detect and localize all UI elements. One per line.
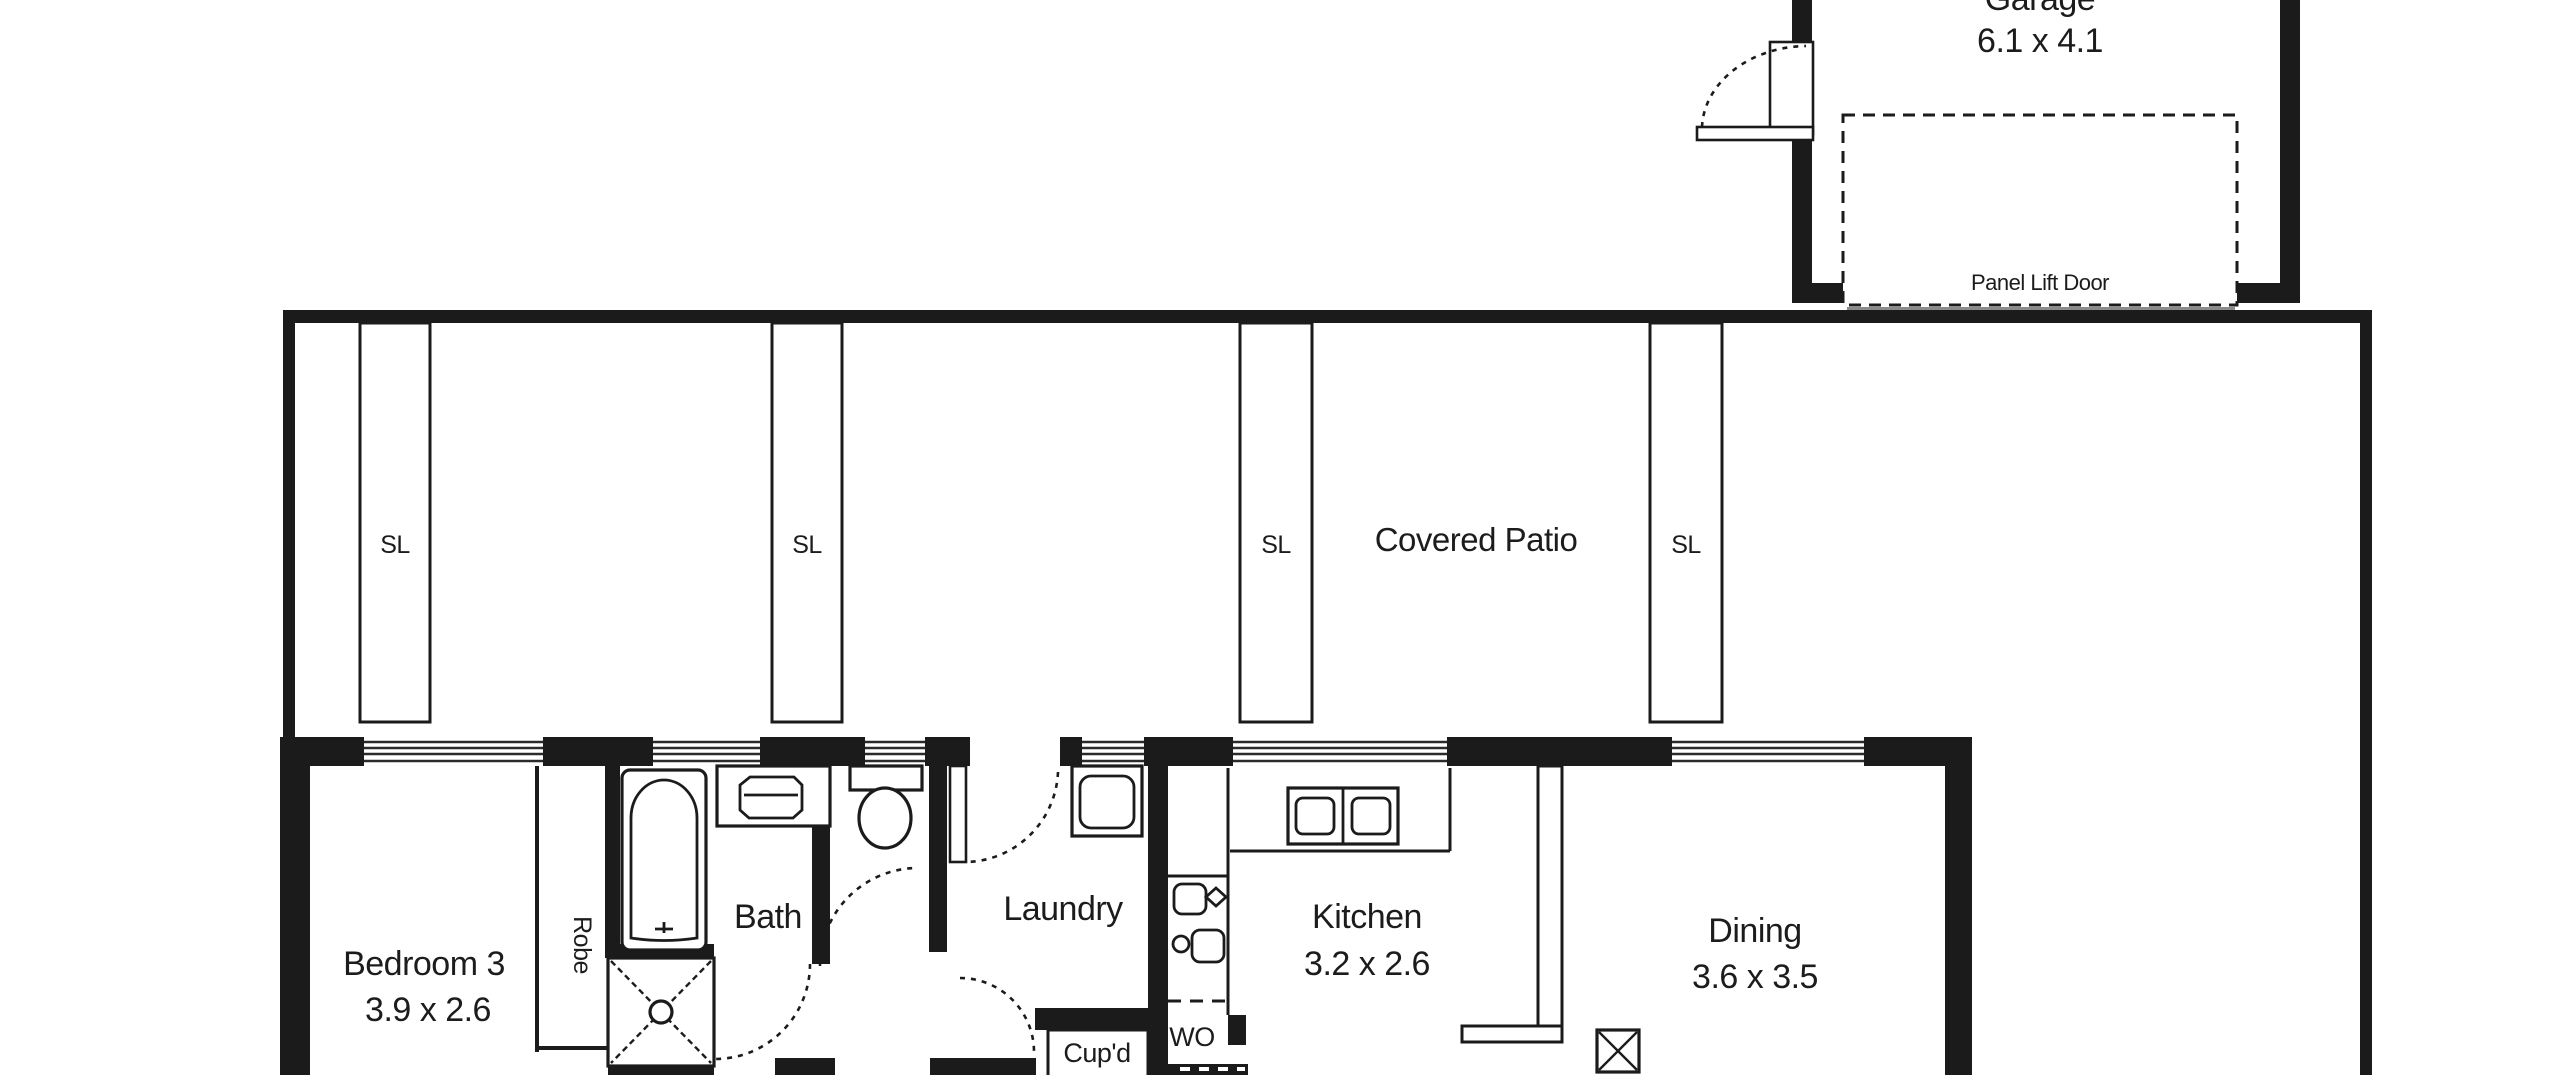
window-wc <box>865 742 925 761</box>
bedroom3: Bedroom 3 3.9 x 2.6 <box>343 945 505 1029</box>
wall-oven-label: WO <box>1169 1022 1215 1052</box>
window-dining <box>1672 742 1864 761</box>
patio-top-wall <box>283 310 2372 323</box>
garage-right-wall <box>2280 0 2300 303</box>
patio-post-3-label: SL <box>1261 531 1291 559</box>
toilet-bowl <box>859 788 911 848</box>
hall-door-swing-arc <box>960 978 1034 1052</box>
laundry-kitchen-wall <box>1148 766 1168 1075</box>
dining: Dining 3.6 x 3.5 <box>1597 912 1818 1072</box>
front-wall-pier <box>1144 737 1233 766</box>
garage-side-door-leaf <box>1697 127 1813 140</box>
window-laundry <box>1082 742 1144 761</box>
robe-label: Robe <box>568 916 596 974</box>
floor-unit-box <box>1597 1030 1639 1072</box>
cooktop-burner <box>1206 888 1226 906</box>
dining-label: Dining <box>1708 912 1801 950</box>
dining-right-exterior-wall <box>1945 766 1972 1075</box>
patio-left-wall <box>283 310 295 740</box>
garage-left-wall-lower <box>1792 133 1812 303</box>
shower-drain <box>650 1001 672 1023</box>
patio-post-4: SL <box>1650 323 1722 722</box>
laundry-door-leaf <box>950 766 966 862</box>
laundry-door-swing-arc <box>966 772 1058 862</box>
robe-bottom-line <box>539 1046 607 1050</box>
cupboard-top-wall <box>1035 1008 1148 1030</box>
cupboard-label: Cup'd <box>1063 1038 1130 1068</box>
bathtub <box>622 770 706 950</box>
kitchen: WO Kitchen 3.2 x 2.6 <box>1168 766 1562 1052</box>
bedroom3-label: Bedroom 3 <box>343 945 505 983</box>
garage-dims: 6.1 x 4.1 <box>1977 22 2103 60</box>
front-wall-pier <box>1864 737 1972 766</box>
patio-post-2-label: SL <box>792 531 822 559</box>
patio-post-1-label: SL <box>380 531 410 559</box>
kitchen-partition-return <box>1462 1026 1562 1042</box>
window-bath <box>653 742 760 761</box>
garage-label: Garage <box>1985 0 2095 18</box>
kitchen-sink <box>1288 788 1398 844</box>
laundry-label: Laundry <box>1003 890 1123 928</box>
bedroom-robe-partition <box>535 766 539 1052</box>
patio-post-2-outline <box>772 323 842 722</box>
cupboard: Cup'd <box>1048 1030 1148 1075</box>
patio-post-3-outline <box>1240 323 1312 722</box>
garage-structure: Garage 6.1 x 4.1 Panel Lift Door <box>1697 0 2300 309</box>
garage-left-wall-upper <box>1792 0 1812 45</box>
toilet-cistern <box>850 766 922 790</box>
oven-bottom-wall <box>1148 1064 1248 1075</box>
garage-side-door <box>1697 42 1813 140</box>
front-wall-pier <box>1447 737 1672 766</box>
kitchen-label: Kitchen <box>1312 898 1422 936</box>
wc-door-swing-arc <box>820 868 918 966</box>
vanity <box>717 766 830 826</box>
laundry-external-door <box>950 766 1058 862</box>
cooktop <box>1173 884 1226 962</box>
front-wall-pier <box>543 737 653 766</box>
garage-side-door-panel <box>1770 42 1813 134</box>
floor-plan-canvas: Garage 6.1 x 4.1 Panel Lift Door SL SL S… <box>0 0 2560 1075</box>
bedroom3-dims: 3.9 x 2.6 <box>365 991 491 1029</box>
patio-post-2: SL <box>772 323 842 722</box>
house-front-wall <box>280 737 1972 766</box>
patio-post-3: SL <box>1240 323 1312 722</box>
window-kitchen <box>1233 742 1447 761</box>
patio-post-1: SL <box>360 323 430 722</box>
patio-right-wall <box>2360 310 2372 1075</box>
garage-bottom-wall-left-stub <box>1792 283 1847 303</box>
cooktop-burner <box>1192 930 1224 962</box>
front-wall-pier <box>1060 737 1082 766</box>
shower <box>608 958 714 1066</box>
front-wall-pier <box>925 737 970 766</box>
front-wall-pier <box>760 737 865 766</box>
kitchen-dining-partition <box>1538 766 1562 1034</box>
house-left-exterior-wall <box>280 737 310 1075</box>
panel-lift-door-label: Panel Lift Door <box>1971 270 2109 295</box>
cooktop-burner <box>1173 936 1189 952</box>
robe-bath-wall <box>605 766 620 958</box>
dining-dims: 3.6 x 3.5 <box>1692 958 1818 996</box>
floor-plan-drawing: Garage 6.1 x 4.1 Panel Lift Door SL SL S… <box>0 0 2560 1075</box>
laundry: Laundry Cup'd <box>950 766 1148 1075</box>
kitchen-wall-stub <box>1228 1015 1246 1045</box>
bath-door-swing-arc <box>715 964 810 1059</box>
patio-post-1-outline <box>360 323 430 722</box>
hall-bottom-wall-right <box>930 1058 1036 1075</box>
laundry-tub <box>1072 766 1142 836</box>
bath-label: Bath <box>734 898 802 936</box>
wc-laundry-wall <box>929 766 947 952</box>
wc <box>820 766 922 966</box>
cooktop-burner <box>1174 884 1206 914</box>
kitchen-dims: 3.2 x 2.6 <box>1304 945 1430 983</box>
patio-post-4-label: SL <box>1671 531 1701 559</box>
hall-bottom-wall-left <box>775 1058 835 1075</box>
window-bedroom3 <box>364 742 543 761</box>
robe: Robe <box>568 916 596 974</box>
bath: Bath <box>608 766 830 1066</box>
patio-post-4-outline <box>1650 323 1722 722</box>
covered-patio-label: Covered Patio <box>1375 521 1578 558</box>
garage-bottom-wall-right-stub <box>2232 283 2300 303</box>
